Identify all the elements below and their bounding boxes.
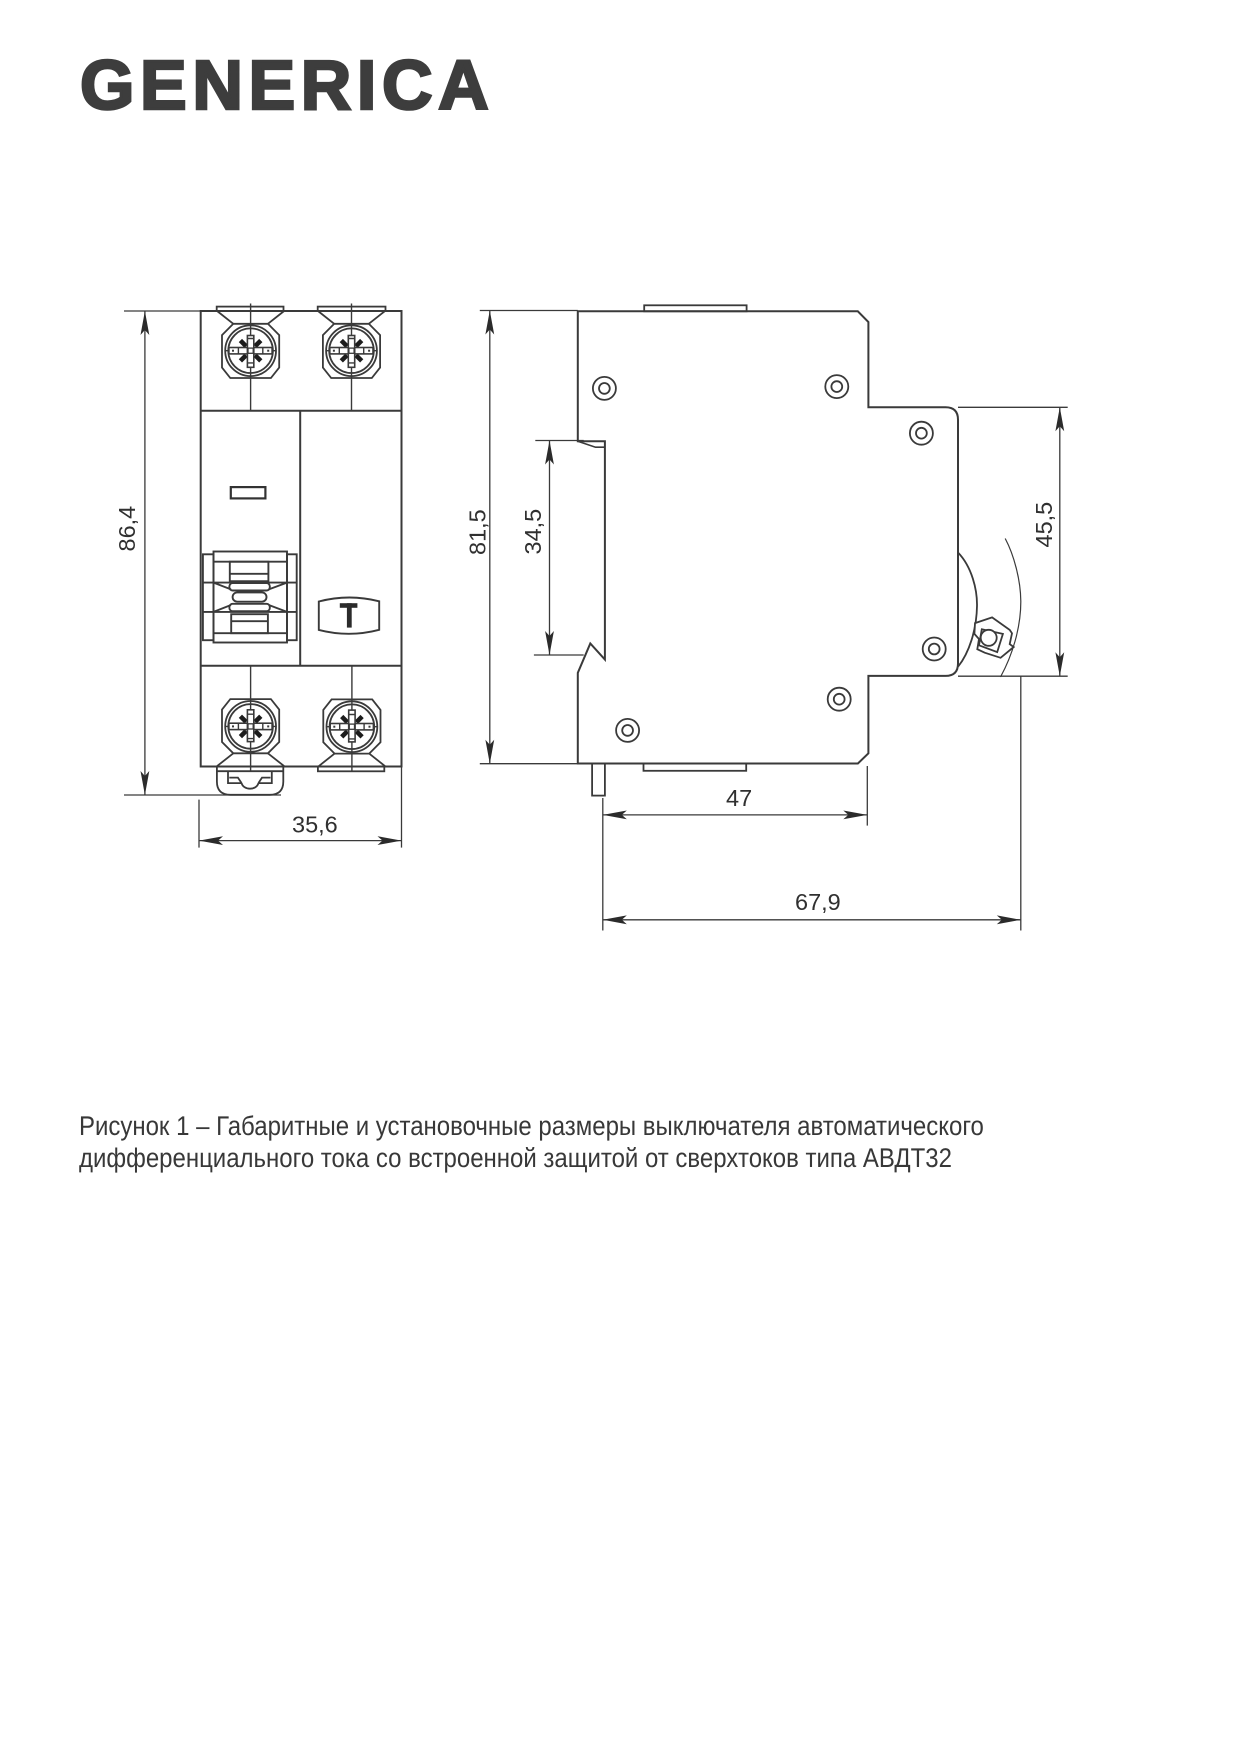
svg-text:86,4: 86,4	[114, 506, 140, 552]
svg-text:81,5: 81,5	[465, 509, 491, 555]
svg-text:67,9: 67,9	[795, 889, 841, 915]
svg-text:47: 47	[726, 785, 752, 811]
svg-text:45,5: 45,5	[1031, 502, 1057, 548]
svg-text:35,6: 35,6	[292, 811, 338, 837]
svg-text:34,5: 34,5	[520, 509, 546, 555]
